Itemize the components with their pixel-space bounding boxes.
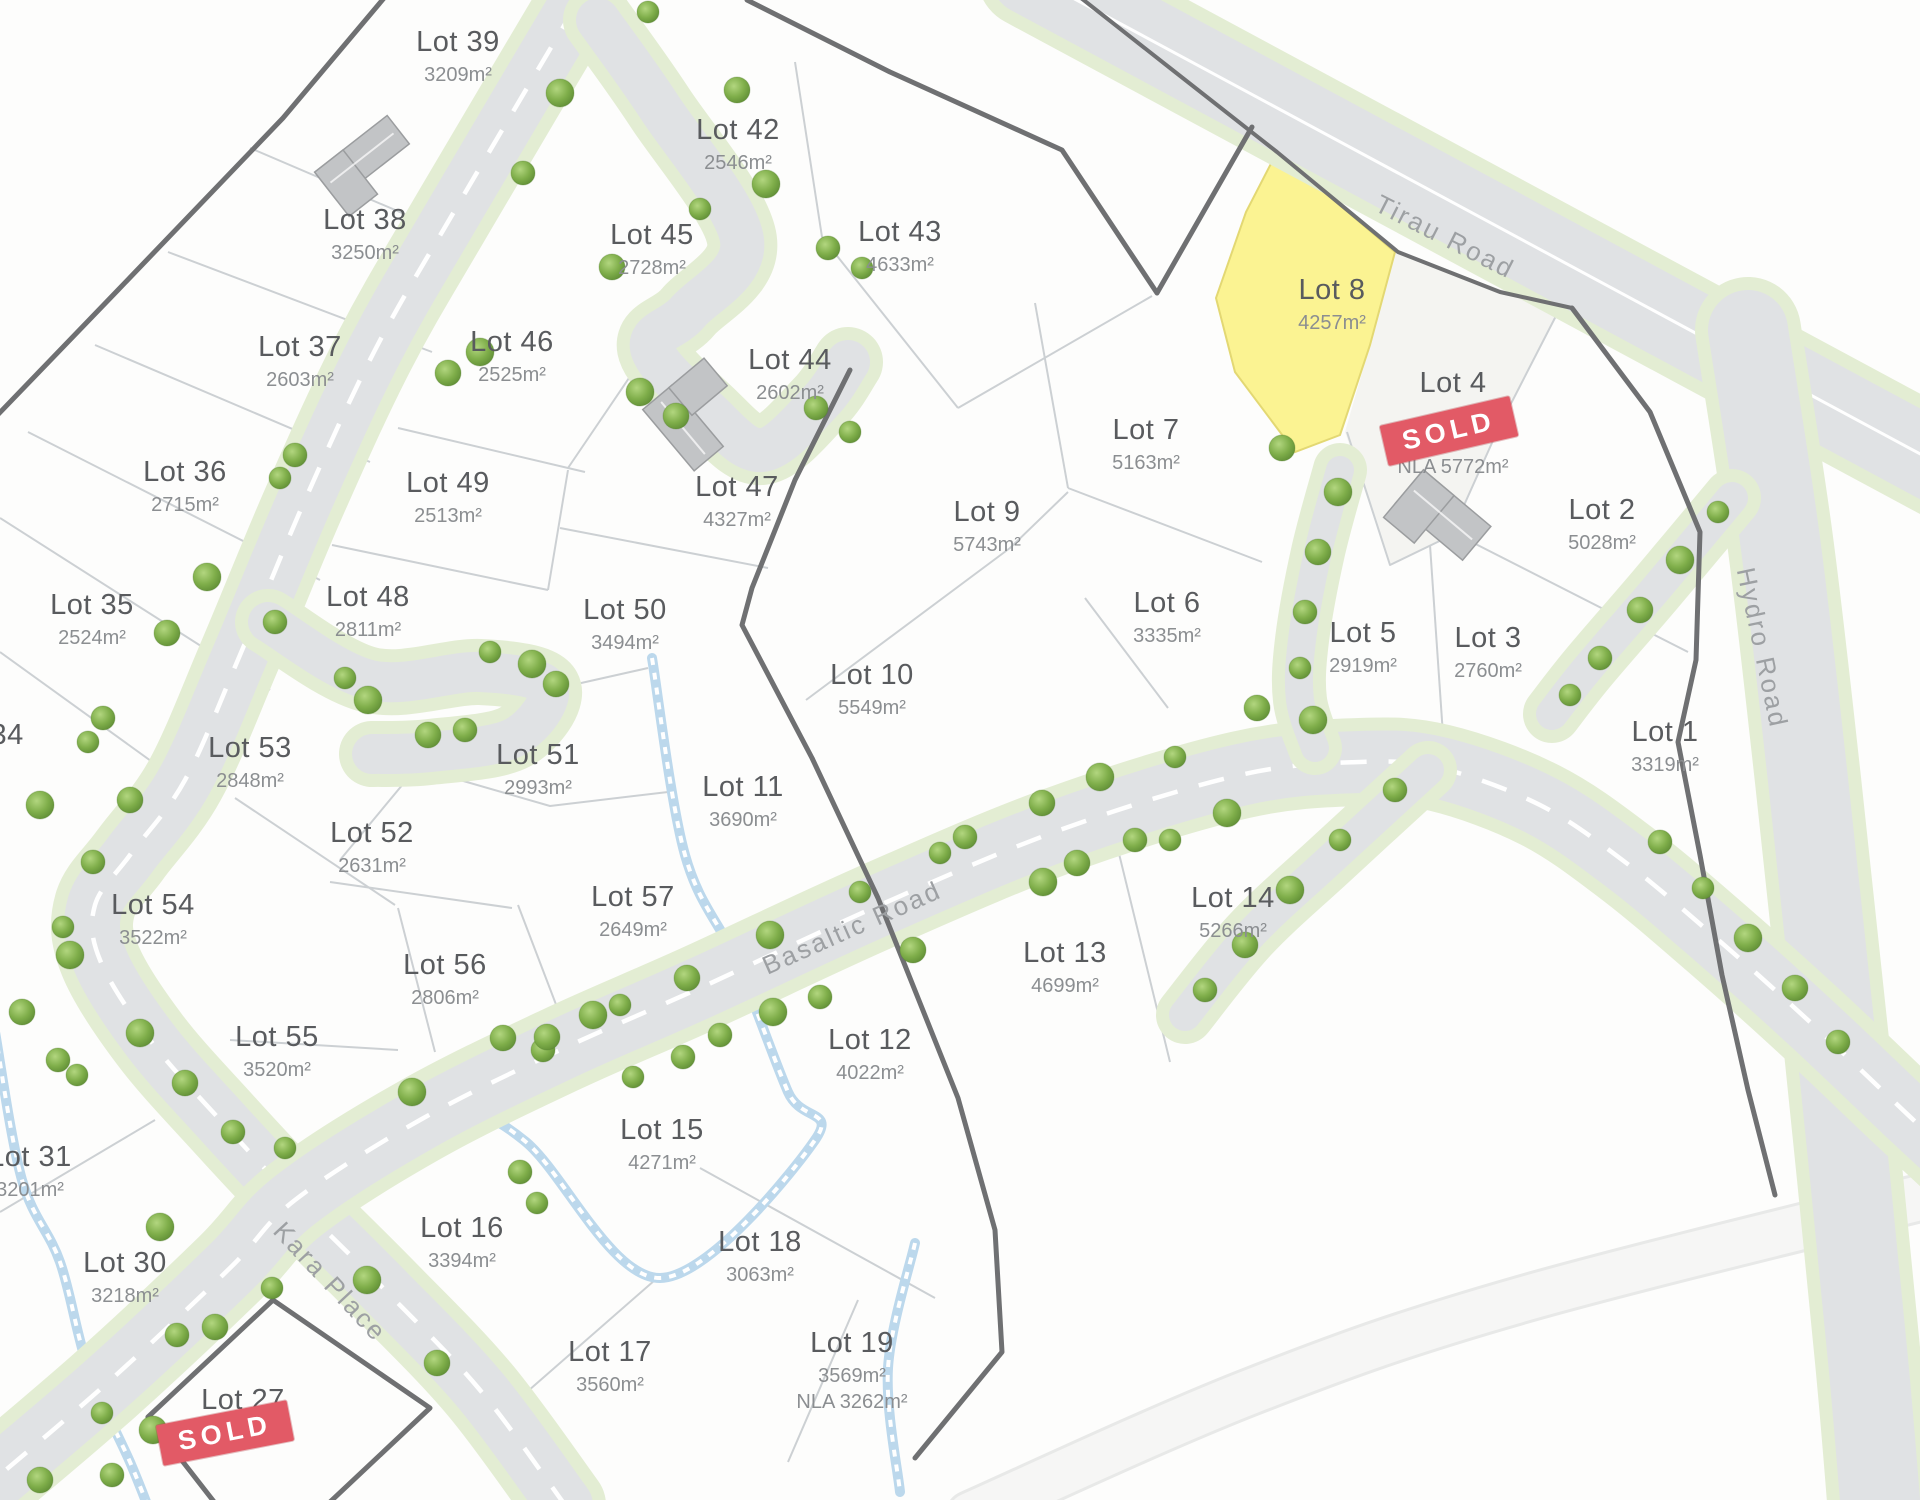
tree-icon [1123,828,1147,852]
lot-42-label-group[interactable]: Lot 422546m² [696,115,780,174]
lot-38-area: 3250m² [331,242,399,264]
lot-48-name: Lot 48 [326,582,410,612]
lot-43-name: Lot 43 [858,217,942,247]
lot-35-area: 2524m² [58,627,126,649]
tree-icon [1064,850,1090,876]
tree-icon [56,941,84,969]
tree-icon [353,1266,381,1294]
lot-39-label-group[interactable]: Lot 393209m² [416,27,500,86]
lot-17-label-group[interactable]: Lot 173560m² [568,1337,652,1396]
tree-icon [609,994,631,1016]
lot-46-area: 2525m² [478,364,546,386]
lot-8-area: 4257m² [1298,312,1366,334]
tree-icon [100,1463,124,1487]
lot-9-area: 5743m² [953,534,1021,556]
lot-36-label-group[interactable]: Lot 362715m² [143,457,227,516]
lot-48-area: 2811m² [335,619,401,641]
tree-icon [637,1,659,23]
tree-icon [202,1314,228,1340]
tree-icon [1734,924,1762,952]
lot-5-area: 2919m² [1329,655,1397,677]
lot-10-name: Lot 10 [830,660,914,690]
tree-icon [1164,746,1186,768]
tree-icon [1559,684,1581,706]
tree-icon [1213,799,1241,827]
lot-31-name: Lot 31 [0,1142,72,1172]
tree-icon [1293,600,1317,624]
lot-37-area: 2603m² [266,369,334,391]
lot-46-label-group[interactable]: Lot 462525m² [470,327,554,386]
lot-52-name: Lot 52 [330,818,414,848]
lot-51-area: 2993m² [504,777,572,799]
lot-53-area: 2848m² [216,770,284,792]
tree-icon [1289,657,1311,679]
tree-icon [274,1137,296,1159]
lot-53-label-group[interactable]: Lot 532848m² [208,733,292,792]
lot-55-name: Lot 55 [235,1022,319,1052]
tree-icon [1276,876,1304,904]
lot-50-area: 3494m² [591,632,659,654]
tree-icon [1244,695,1270,721]
lot-52-area: 2631m² [338,855,406,877]
lot-56-name: Lot 56 [403,950,487,980]
tree-icon [1299,706,1327,734]
lot-44-name: Lot 44 [748,345,832,375]
tree-icon [543,671,569,697]
lot-48-label-group[interactable]: Lot 482811m² [326,582,410,641]
tree-icon [334,667,356,689]
lot-42-name: Lot 42 [696,115,780,145]
lot-19-nla: NLA 3262m² [796,1391,907,1413]
tree-icon [953,825,977,849]
tree-icon [263,610,287,634]
tree-icon [154,620,180,646]
tree-icon [663,403,689,429]
tree-icon [526,1192,548,1214]
lot-49-area: 2513m² [414,505,482,527]
tree-icon [398,1078,426,1106]
tree-icon [626,378,654,406]
tree-icon [1305,539,1331,565]
lot-31-area: 3201m² [0,1179,64,1201]
lot-17-area: 3560m² [576,1374,644,1396]
tree-icon [139,1416,167,1444]
lot-49-name: Lot 49 [406,468,490,498]
lot-38-name: Lot 38 [323,205,407,235]
lot-47-name: Lot 47 [695,472,779,502]
lot-45-area: 2728m² [618,257,686,279]
lot-39-name: Lot 39 [416,27,500,57]
tree-icon [26,791,54,819]
lot-56-label-group[interactable]: Lot 562806m² [403,950,487,1009]
lot-39-area: 3209m² [424,64,492,86]
lot-51-name: Lot 51 [496,740,580,770]
tree-icon [1707,501,1729,523]
lot-1-area: 3319m² [1631,754,1699,776]
tree-icon [518,650,546,678]
tree-icon [9,999,35,1025]
lot-5-name: Lot 5 [1330,618,1397,648]
lot-1-label-group[interactable]: Lot 13319m² [1631,717,1699,776]
tree-icon [172,1070,198,1096]
lot-9-label-group[interactable]: Lot 95743m² [953,497,1021,556]
lot-13-area: 4699m² [1031,975,1099,997]
tree-icon [752,170,780,198]
tree-icon [674,965,700,991]
lot-55-label-group[interactable]: Lot 553520m² [235,1022,319,1081]
lot-15-area: 4271m² [628,1152,696,1174]
tree-icon [490,1025,516,1051]
tree-icon [849,881,871,903]
lot-54-name: Lot 54 [111,890,195,920]
lot-51-label-group[interactable]: Lot 512993m² [496,740,580,799]
tree-icon [579,1001,607,1029]
lot-19-area: 3569m² [818,1365,886,1387]
lot-15-name: Lot 15 [620,1115,704,1145]
lot-3-area: 2760m² [1454,660,1522,682]
lot-2-label-group[interactable]: Lot 25028m² [1568,495,1636,554]
lot-37-label-group[interactable]: Lot 372603m² [258,332,342,391]
lot-13-label-group[interactable]: Lot 134699m² [1023,938,1107,997]
lot-7-area: 5163m² [1112,452,1180,474]
lot-36-name: Lot 36 [143,457,227,487]
tree-icon [1029,790,1055,816]
tree-icon [708,1023,732,1047]
lot-30-label-group[interactable]: Lot 303218m² [83,1248,167,1307]
tree-icon [1692,877,1714,899]
lot-43-label-group[interactable]: Lot 434633m² [858,217,942,276]
lot-11-area: 3690m² [709,809,777,831]
tree-icon [81,850,105,874]
tree-icon [77,731,99,753]
lot-10-label-group[interactable]: Lot 105549m² [830,660,914,719]
lot-54-label-group[interactable]: Lot 543522m² [111,890,195,949]
lot-35-name: Lot 35 [50,590,134,620]
tree-icon [546,79,574,107]
lot-57-area: 2649m² [599,919,667,941]
tree-icon [261,1277,283,1299]
lot-3-name: Lot 3 [1455,623,1522,653]
tree-icon [435,360,461,386]
lot-4-nla: NLA 5772m² [1397,456,1508,478]
lot-30-name: Lot 30 [83,1248,167,1278]
lot-19-label-group[interactable]: Lot 193569m²NLA 3262m² [796,1328,907,1413]
tree-icon [165,1323,189,1347]
lot-16-area: 3394m² [428,1250,496,1272]
tree-icon [453,718,477,742]
tree-icon [534,1024,560,1050]
lot-30-area: 3218m² [91,1285,159,1307]
tree-icon [1269,435,1295,461]
lot-16-label-group[interactable]: Lot 163394m² [420,1213,504,1272]
tree-icon [1329,829,1351,851]
tree-icon [622,1066,644,1088]
tree-icon [511,161,535,185]
lot-19-name: Lot 19 [810,1328,894,1358]
lot-36-area: 2715m² [151,494,219,516]
lot-44-label-group[interactable]: Lot 442602m² [748,345,832,404]
lot-55-area: 3520m² [243,1059,311,1081]
lot-8-label-group[interactable]: Lot 84257m² [1298,275,1366,334]
lot-2-area: 5028m² [1568,532,1636,554]
lot-15-label-group[interactable]: Lot 154271m² [620,1115,704,1174]
lot-6-area: 3335m² [1133,625,1201,647]
tree-icon [1324,478,1352,506]
lot-6-label-group[interactable]: Lot 63335m² [1133,588,1201,647]
lot-34-label-group[interactable]: Lot 34m² [0,720,24,779]
tree-icon [193,563,221,591]
tree-icon [354,686,382,714]
tree-icon [1826,1030,1850,1054]
lot-54-area: 3522m² [119,927,187,949]
lot-37-name: Lot 37 [258,332,342,362]
tree-icon [117,787,143,813]
lot-14-name: Lot 14 [1191,883,1275,913]
lot-27-name: Lot 27 [201,1385,285,1415]
lot-47-label-group[interactable]: Lot 474327m² [695,472,779,531]
lot-17-name: Lot 17 [568,1337,652,1367]
lot-10-area: 5549m² [838,697,906,719]
lot-52-label-group[interactable]: Lot 522631m² [330,818,414,877]
tree-icon [1159,829,1181,851]
lot-5-label-group[interactable]: Lot 52919m² [1329,618,1397,677]
lot-44-area: 2602m² [756,382,824,404]
lot-27-label-group[interactable]: Lot 27 [201,1385,285,1415]
tree-icon [508,1160,532,1184]
lot-4-name: Lot 4 [1419,368,1486,398]
lot-4-label-group[interactable]: Lot 4NLA 5772m² [1397,368,1508,478]
lot-7-name: Lot 7 [1113,415,1180,445]
lot-18-name: Lot 18 [718,1227,802,1257]
lot-14-area: 5266m² [1199,920,1267,942]
tree-icon [671,1045,695,1069]
lot-45-name: Lot 45 [610,220,694,250]
tree-icon [929,842,951,864]
lot-18-area: 3063m² [726,1264,794,1286]
tree-icon [27,1467,53,1493]
lot-9-name: Lot 9 [954,497,1021,527]
tree-icon [283,443,307,467]
lot-45-label-group[interactable]: Lot 452728m² [610,220,694,279]
lot-12-name: Lot 12 [828,1025,912,1055]
lot-34-name: Lot 34 [0,720,24,750]
tree-icon [759,998,787,1026]
lot-31-label-group[interactable]: Lot 313201m² [0,1142,72,1201]
lot-2-name: Lot 2 [1569,495,1636,525]
tree-icon [221,1120,245,1144]
lot-38-label-group[interactable]: Lot 383250m² [323,205,407,264]
lot-46-name: Lot 46 [470,327,554,357]
lot-13-name: Lot 13 [1023,938,1107,968]
lot-11-name: Lot 11 [702,772,783,802]
tree-icon [724,77,750,103]
tree-icon [1029,868,1057,896]
lot-8-name: Lot 8 [1299,275,1366,305]
tree-icon [1086,763,1114,791]
tree-icon [91,1402,113,1424]
lot-7-label-group[interactable]: Lot 75163m² [1112,415,1180,474]
lot-57-name: Lot 57 [591,882,675,912]
lot-16-name: Lot 16 [420,1213,504,1243]
lot-14-label-group[interactable]: Lot 145266m² [1191,883,1275,942]
tree-icon [756,921,784,949]
tree-icon [808,985,832,1009]
lot-56-area: 2806m² [411,987,479,1009]
tree-icon [479,641,501,663]
lot-12-area: 4022m² [836,1062,904,1084]
tree-icon [1648,830,1672,854]
tree-icon [1193,978,1217,1002]
tree-icon [1383,778,1407,802]
tree-icon [91,706,115,730]
lot-3-label-group[interactable]: Lot 32760m² [1454,623,1522,682]
lot-35-label-group[interactable]: Lot 352524m² [50,590,134,649]
lot-50-label-group[interactable]: Lot 503494m² [583,595,667,654]
lot-12-label-group[interactable]: Lot 124022m² [828,1025,912,1084]
lot-47-area: 4327m² [703,509,771,531]
tree-icon [900,937,926,963]
lot-42-area: 2546m² [704,152,772,174]
lot-49-label-group[interactable]: Lot 492513m² [406,468,490,527]
lot-43-area: 4633m² [866,254,934,276]
tree-icon [689,198,711,220]
tree-icon [1627,597,1653,623]
lot-18-label-group[interactable]: Lot 183063m² [718,1227,802,1286]
tree-icon [816,236,840,260]
tree-icon [415,722,441,748]
tree-icon [52,916,74,938]
lot-50-name: Lot 50 [583,595,667,625]
tree-icon [66,1064,88,1086]
tree-icon [146,1213,174,1241]
tree-icon [1782,975,1808,1001]
tree-icon [46,1048,70,1072]
lot-11-label-group[interactable]: Lot 113690m² [702,772,783,831]
tree-icon [1666,546,1694,574]
tree-icon [424,1350,450,1376]
lot-57-label-group[interactable]: Lot 572649m² [591,882,675,941]
lot-53-name: Lot 53 [208,733,292,763]
lot-6-name: Lot 6 [1134,588,1201,618]
tree-icon [269,467,291,489]
tree-icon [839,421,861,443]
subdivision-plan-map: Lot 393209m²Lot 383250m²Lot 372603m²Lot … [0,0,1920,1500]
lot-1-name: Lot 1 [1632,717,1699,747]
tree-icon [126,1019,154,1047]
tree-icon [1588,646,1612,670]
